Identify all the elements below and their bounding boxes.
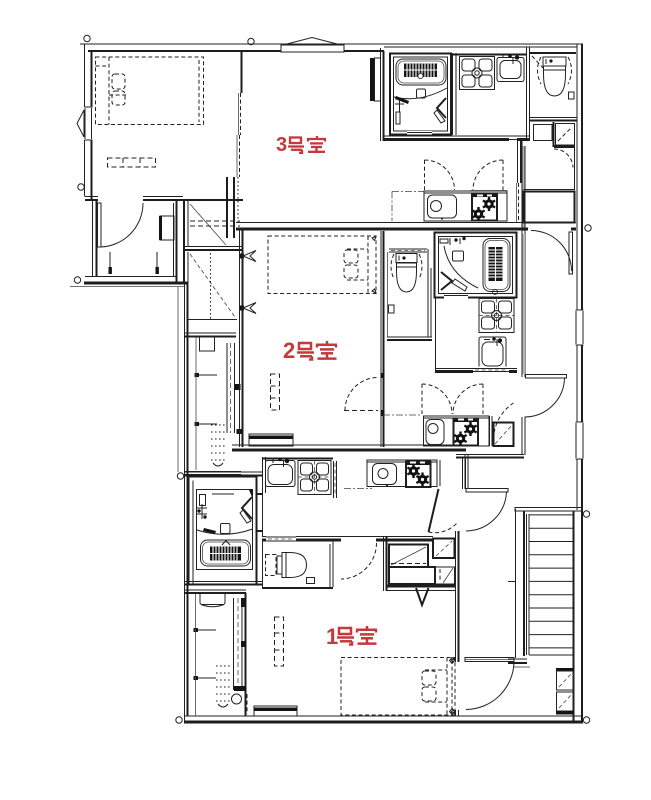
svg-text:1: 1 xyxy=(326,624,338,649)
svg-text:3: 3 xyxy=(276,134,287,156)
svg-text:2: 2 xyxy=(283,338,295,363)
